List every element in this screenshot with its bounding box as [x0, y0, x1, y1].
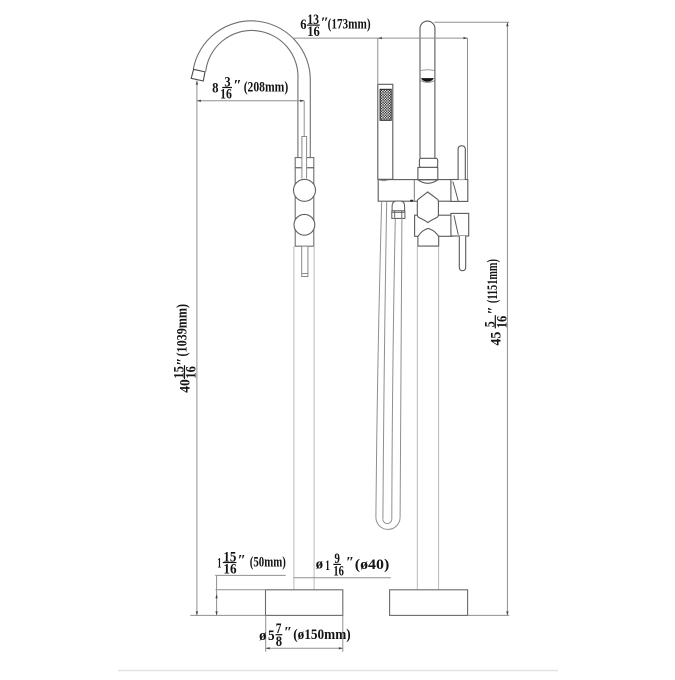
svg-text:40: 40 [178, 379, 194, 393]
svg-text:(ø40): (ø40) [355, 557, 390, 573]
svg-text:6: 6 [300, 17, 307, 33]
svg-text:″: ″ [233, 77, 241, 93]
svg-text:16: 16 [494, 315, 510, 328]
svg-text:(173mm): (173mm) [328, 16, 371, 32]
svg-text:ø: ø [259, 628, 267, 644]
svg-text:″: ″ [485, 306, 501, 314]
svg-text:″: ″ [284, 625, 292, 641]
svg-text:16: 16 [307, 24, 320, 40]
svg-text:1: 1 [217, 555, 221, 571]
svg-text:8: 8 [212, 81, 218, 97]
svg-text:45: 45 [489, 332, 505, 346]
svg-text:″: ″ [238, 552, 246, 568]
svg-text:(1151mm): (1151mm) [485, 259, 501, 303]
svg-text:″: ″ [175, 357, 191, 365]
svg-text:16: 16 [333, 564, 344, 580]
svg-text:1: 1 [325, 558, 330, 574]
svg-text:16: 16 [220, 87, 232, 103]
svg-text:5: 5 [268, 628, 275, 644]
svg-text:ø: ø [316, 556, 324, 572]
svg-text:8: 8 [276, 634, 282, 650]
svg-text:16: 16 [223, 562, 237, 578]
svg-text:16: 16 [184, 366, 200, 379]
svg-text:(208mm): (208mm) [244, 80, 289, 96]
svg-text:(ø150mm): (ø150mm) [293, 627, 351, 643]
svg-text:(50mm): (50mm) [250, 555, 286, 571]
svg-text:″: ″ [346, 554, 354, 570]
svg-text:(1039mm): (1039mm) [174, 304, 190, 357]
